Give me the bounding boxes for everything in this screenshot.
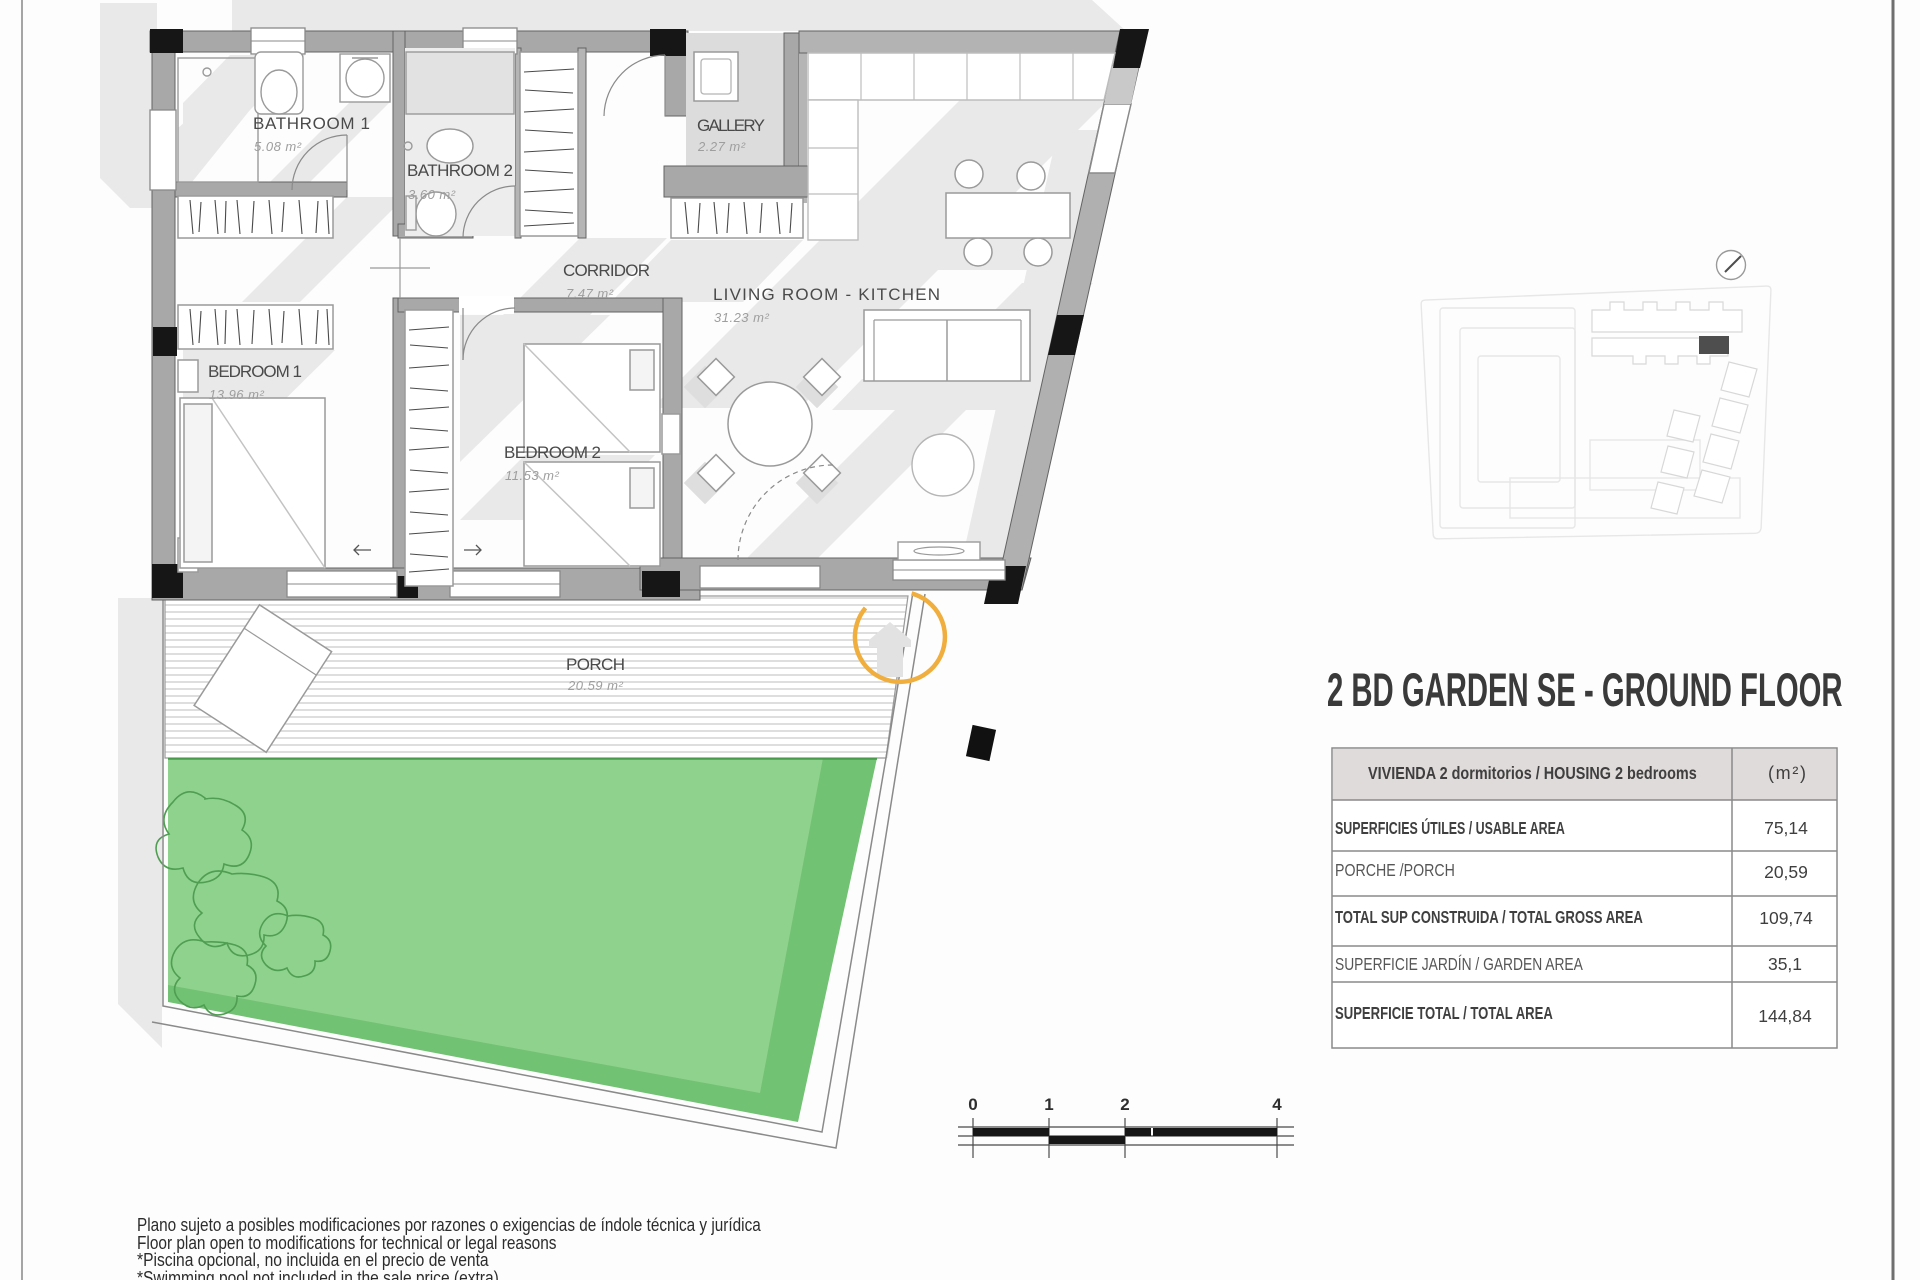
svg-text:LIVING ROOM - KITCHEN: LIVING ROOM - KITCHEN <box>713 285 940 304</box>
svg-text:VIVIENDA 2 dormitorios / HOUSI: VIVIENDA 2 dormitorios / HOUSING 2 bedro… <box>1368 764 1697 784</box>
svg-text:SUPERFICIE TOTAL / TOTAL AREA: SUPERFICIE TOTAL / TOTAL AREA <box>1335 1004 1553 1023</box>
svg-text:BATHROOM 2: BATHROOM 2 <box>407 161 513 180</box>
svg-text:2 BD GARDEN SE - GROUND FLOOR: 2 BD GARDEN SE - GROUND FLOOR <box>1327 665 1842 717</box>
svg-text:5.08 m²: 5.08 m² <box>254 139 302 154</box>
svg-text:11.53 m²: 11.53 m² <box>505 468 560 483</box>
svg-text:2: 2 <box>1120 1095 1129 1114</box>
svg-text:20,59: 20,59 <box>1764 862 1808 882</box>
svg-text:13.96 m²: 13.96 m² <box>209 387 264 402</box>
svg-text:2.27 m²: 2.27 m² <box>697 139 746 154</box>
svg-text:CORRIDOR: CORRIDOR <box>563 261 650 280</box>
svg-text:PORCH: PORCH <box>566 655 625 674</box>
svg-text:4: 4 <box>1272 1095 1282 1114</box>
svg-text:109,74: 109,74 <box>1759 908 1813 928</box>
svg-text:SUPERFICIE JARDÍN / GARDEN ARE: SUPERFICIE JARDÍN / GARDEN AREA <box>1335 953 1583 974</box>
svg-text:75,14: 75,14 <box>1764 818 1808 838</box>
svg-text:0: 0 <box>968 1095 977 1114</box>
svg-text:BEDROOM 1: BEDROOM 1 <box>208 362 302 381</box>
svg-text:GALLERY: GALLERY <box>697 116 765 135</box>
svg-text:20.59 m²: 20.59 m² <box>567 678 623 693</box>
svg-text:31.23 m²: 31.23 m² <box>714 310 769 325</box>
svg-text:BEDROOM 2: BEDROOM 2 <box>504 443 601 462</box>
svg-text:144,84: 144,84 <box>1758 1006 1812 1026</box>
svg-text:1: 1 <box>1044 1095 1053 1114</box>
svg-text:PORCHE /PORCH: PORCHE /PORCH <box>1335 860 1455 880</box>
svg-text:3.60 m²: 3.60 m² <box>408 187 456 202</box>
svg-text:SUPERFICIES ÚTILES / USABLE AR: SUPERFICIES ÚTILES / USABLE AREA <box>1335 818 1565 839</box>
svg-text:7.47 m²: 7.47 m² <box>566 286 614 301</box>
svg-text:*Swimming pool not included in: *Swimming pool not included in the sale … <box>137 1268 499 1280</box>
svg-text:(m²): (m²) <box>1768 763 1806 783</box>
svg-text:TOTAL SUP CONSTRUIDA / TOTAL G: TOTAL SUP CONSTRUIDA / TOTAL GROSS AREA <box>1335 908 1643 927</box>
svg-text:35,1: 35,1 <box>1768 954 1802 974</box>
svg-text:BATHROOM 1: BATHROOM 1 <box>253 114 370 133</box>
